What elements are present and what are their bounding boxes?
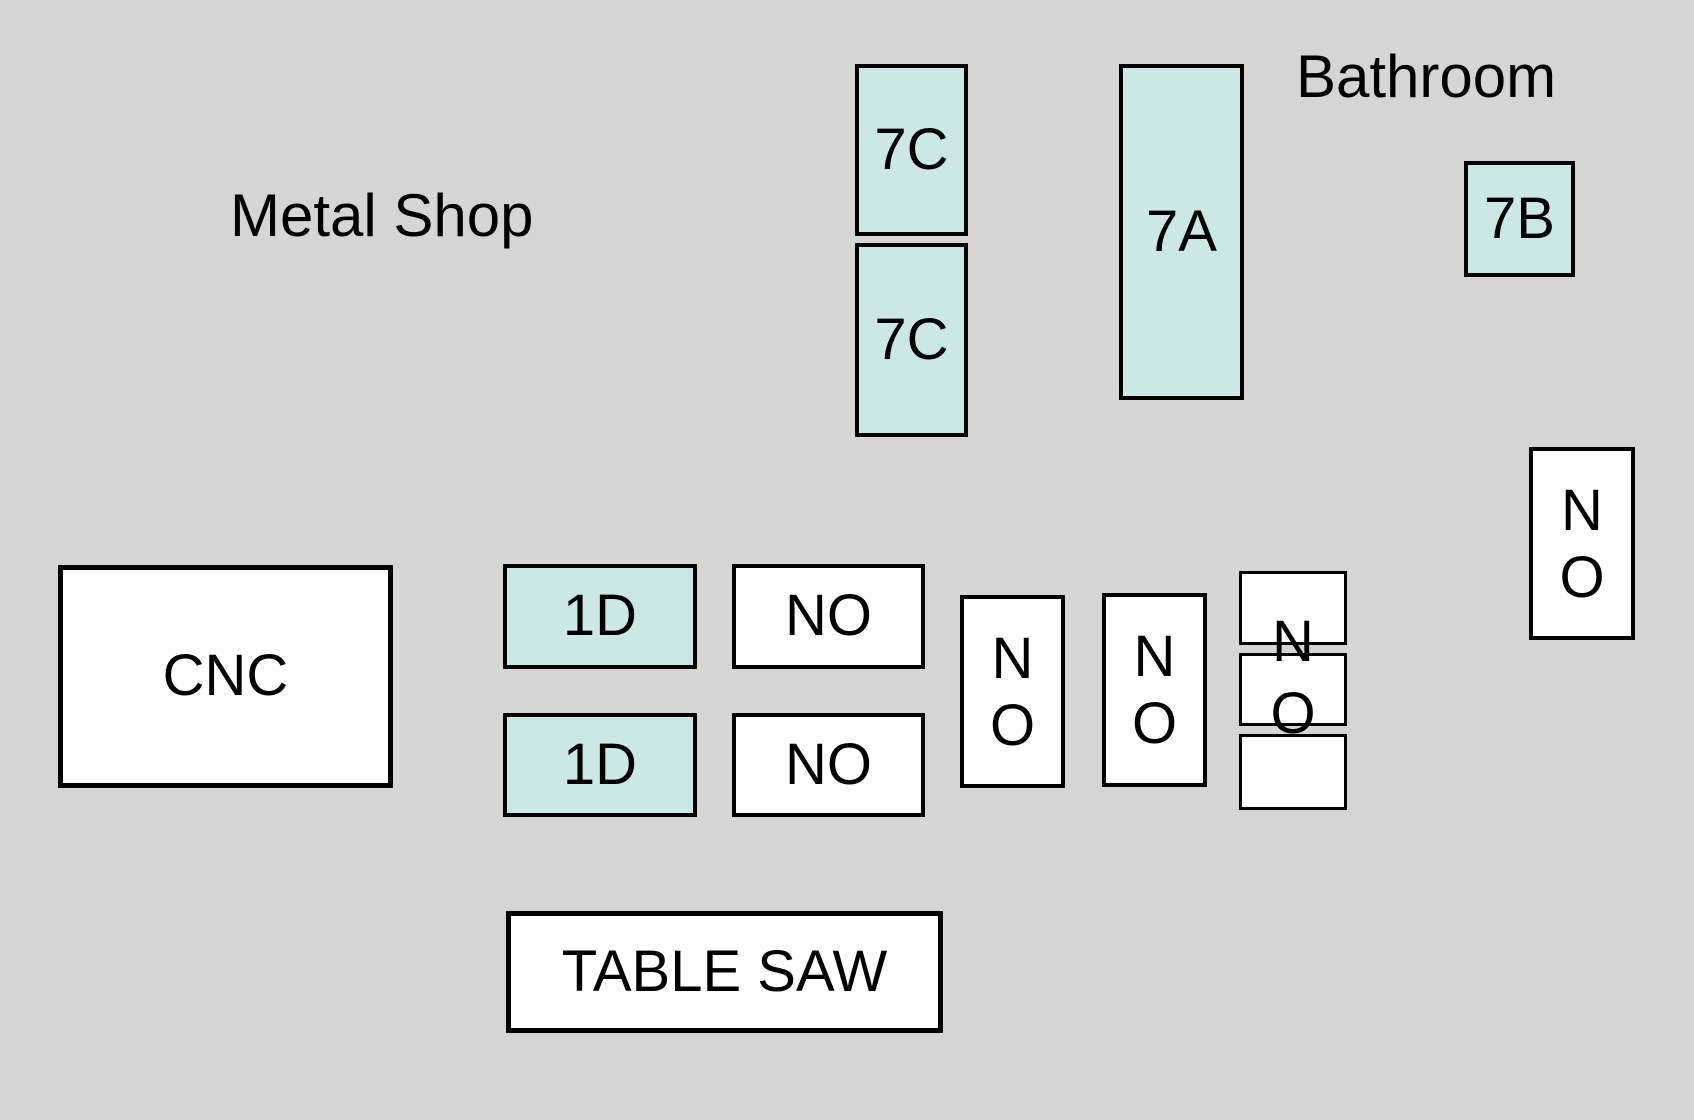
box-no-vertical-middle-line1: N (1134, 623, 1176, 690)
metal-shop-label: Metal Shop (230, 186, 534, 246)
box-1d-bottom-label: 1D (563, 732, 637, 799)
box-no-vertical-left-line2: O (990, 692, 1035, 759)
floor-plan-diagram: Metal Shop Bathroom 7C 7C 7A 7B CNC 1D N… (0, 0, 1694, 1120)
box-7a-label: 7A (1146, 199, 1217, 266)
box-no-vertical-middle-line2: O (1132, 690, 1177, 757)
box-table-saw-label: TABLE SAW (562, 939, 888, 1006)
box-7c-bottom-label: 7C (874, 307, 948, 374)
box-1d-top: 1D (503, 564, 697, 669)
box-no-vertical-right-line2: O (1559, 544, 1604, 611)
box-cnc-label: CNC (163, 643, 289, 710)
box-no-bottom-label: NO (785, 732, 872, 799)
box-no-top-label: NO (785, 583, 872, 650)
box-7c-bottom: 7C (855, 243, 968, 437)
box-no-vertical-left: N O (960, 595, 1065, 788)
box-7c-top-label: 7C (874, 117, 948, 184)
box-stack-middle (1239, 653, 1347, 726)
box-no-vertical-right: N O (1529, 447, 1635, 640)
box-7a: 7A (1119, 64, 1244, 400)
box-7c-top: 7C (855, 64, 968, 236)
box-no-vertical-right-line1: N (1561, 477, 1603, 544)
box-7b-label: 7B (1484, 186, 1555, 253)
box-7b: 7B (1464, 161, 1575, 277)
box-1d-bottom: 1D (503, 713, 697, 817)
box-no-bottom: NO (732, 713, 925, 817)
box-stack-top (1239, 571, 1347, 645)
box-no-top: NO (732, 564, 925, 669)
box-no-vertical-left-line1: N (992, 625, 1034, 692)
bathroom-label: Bathroom (1296, 47, 1556, 107)
box-no-vertical-middle: N O (1102, 593, 1207, 787)
box-1d-top-label: 1D (563, 583, 637, 650)
box-table-saw: TABLE SAW (506, 911, 943, 1033)
box-cnc: CNC (58, 565, 393, 788)
box-stack-bottom (1239, 734, 1347, 810)
